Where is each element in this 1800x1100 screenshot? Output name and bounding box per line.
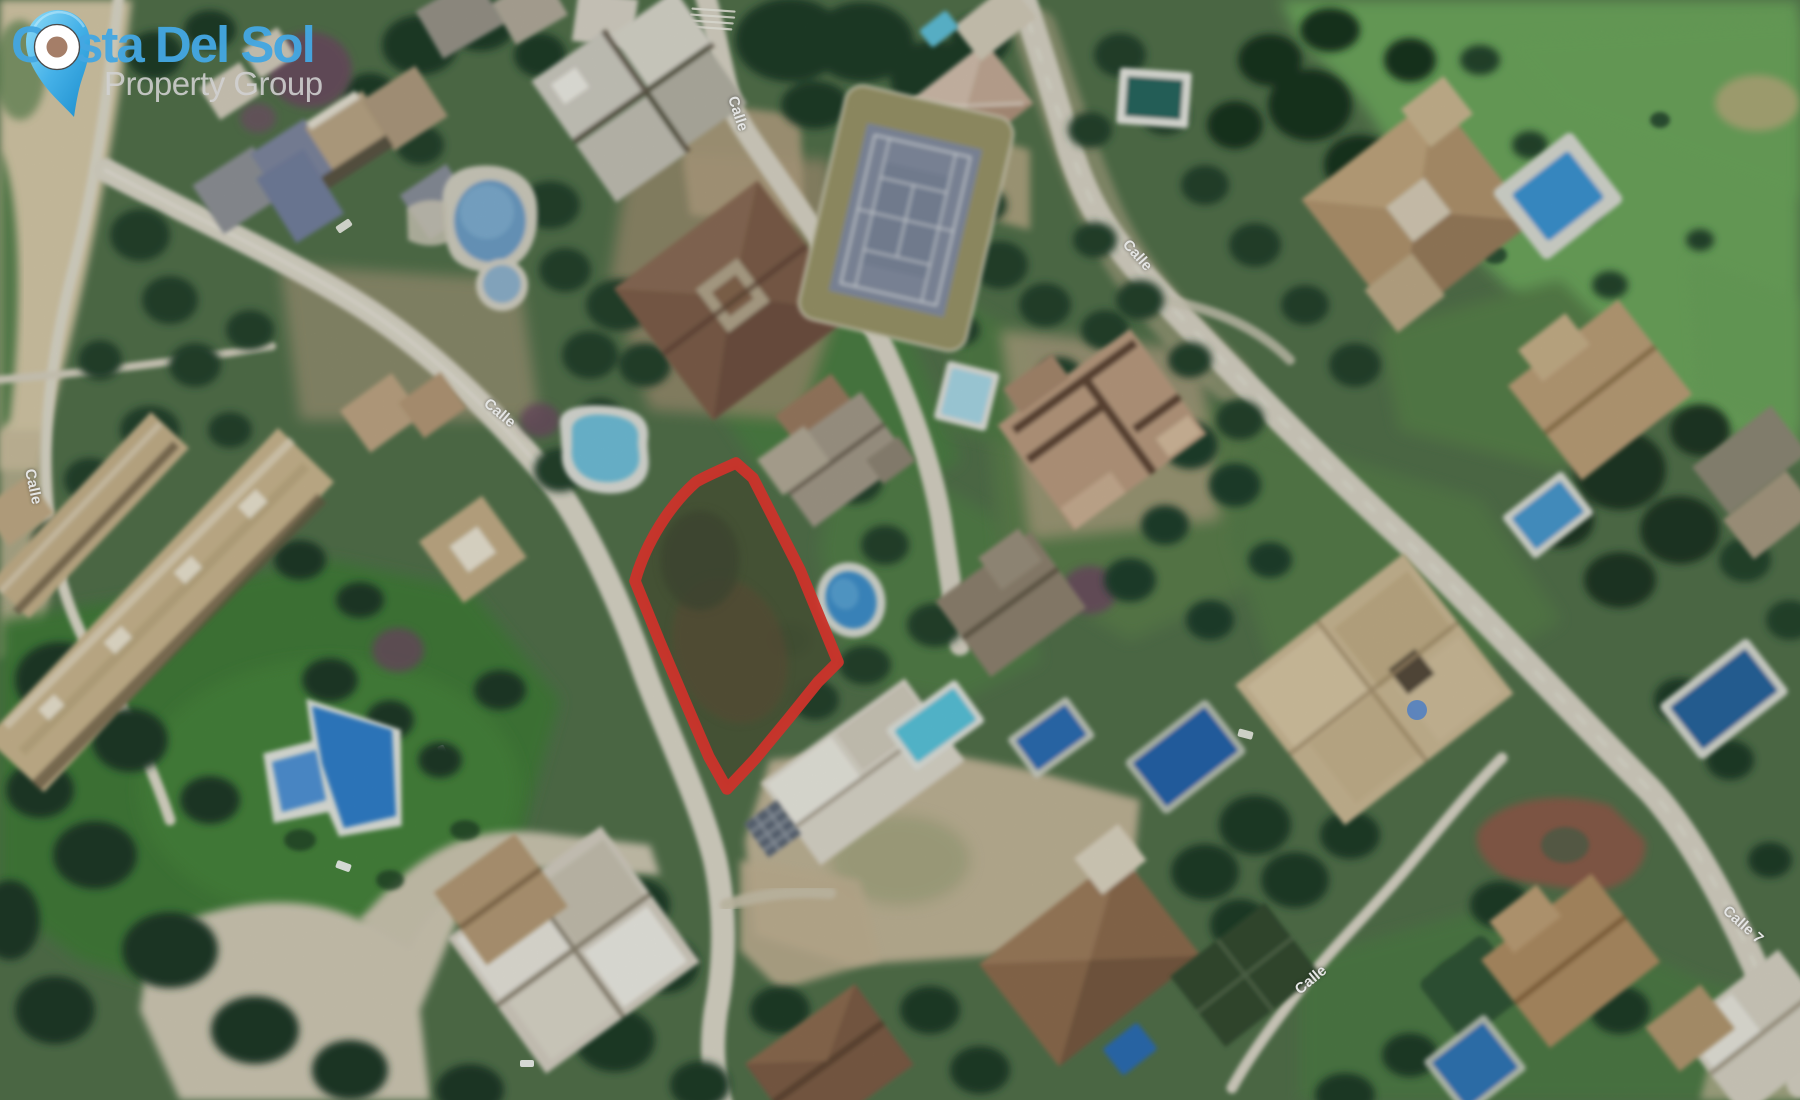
svg-text:Property Group: Property Group — [104, 65, 323, 102]
